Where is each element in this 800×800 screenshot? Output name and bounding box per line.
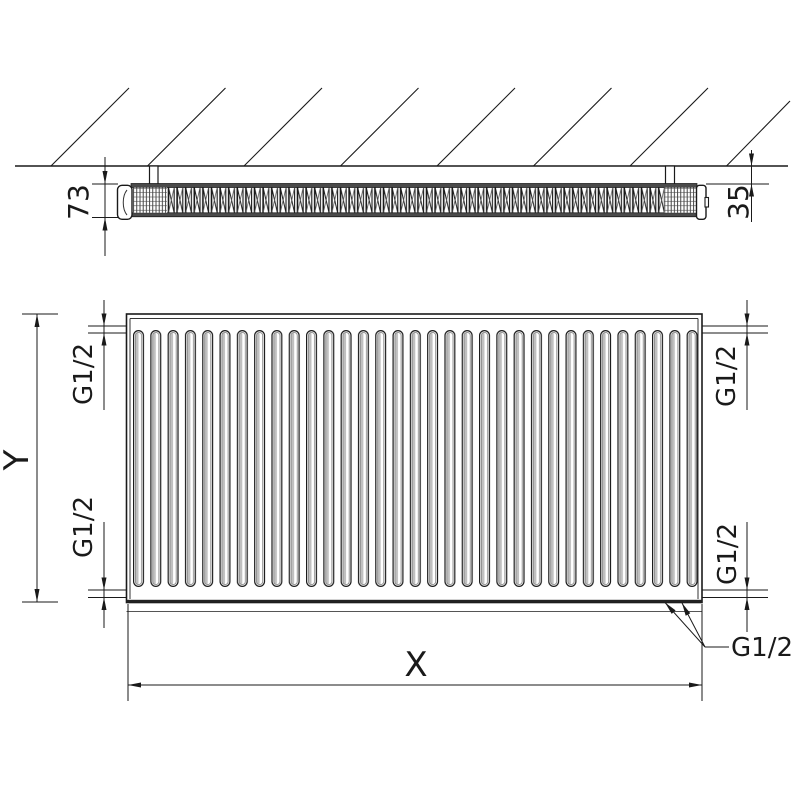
drawing-canvas: 73 35	[0, 0, 800, 800]
wall-hatching	[51, 88, 790, 166]
wall-distance-dim-label: 35	[722, 184, 755, 220]
wall-bracket-right	[666, 166, 675, 185]
front-view: Y X G1/2 G1/2	[0, 300, 793, 701]
thread-label-top-left: G1/2	[69, 343, 99, 405]
dim-width: X	[128, 604, 702, 701]
wall-bracket-left	[150, 166, 159, 185]
thread-label-top-right: G1/2	[712, 345, 742, 407]
dim-wall-distance: 35	[706, 150, 769, 222]
front-slots	[133, 330, 698, 587]
dim-height: Y	[0, 314, 58, 602]
dim-thread-top-right: G1/2	[712, 300, 750, 410]
dim-thread-top-left: G1/2	[69, 300, 107, 410]
radiator-side-body	[117, 166, 709, 219]
radiator-front-panel	[127, 314, 703, 612]
dim-depth: 73	[62, 157, 118, 256]
side-view: 73 35	[15, 88, 790, 256]
height-dim-label: Y	[0, 449, 37, 471]
thread-label-bottom-left: G1/2	[69, 496, 99, 558]
dim-thread-bottom-right: G1/2	[713, 522, 750, 632]
thread-label-bottom-right: G1/2	[713, 523, 743, 585]
thread-label-bottom-ports: G1/2	[731, 633, 793, 663]
dim-thread-bottom-left: G1/2	[69, 496, 107, 628]
radiator-technical-drawing: 73 35	[0, 0, 800, 800]
end-cap-left	[118, 185, 133, 219]
convector-fins	[167, 188, 664, 213]
depth-dim-label: 73	[62, 184, 95, 220]
width-dim-label: X	[404, 645, 427, 685]
